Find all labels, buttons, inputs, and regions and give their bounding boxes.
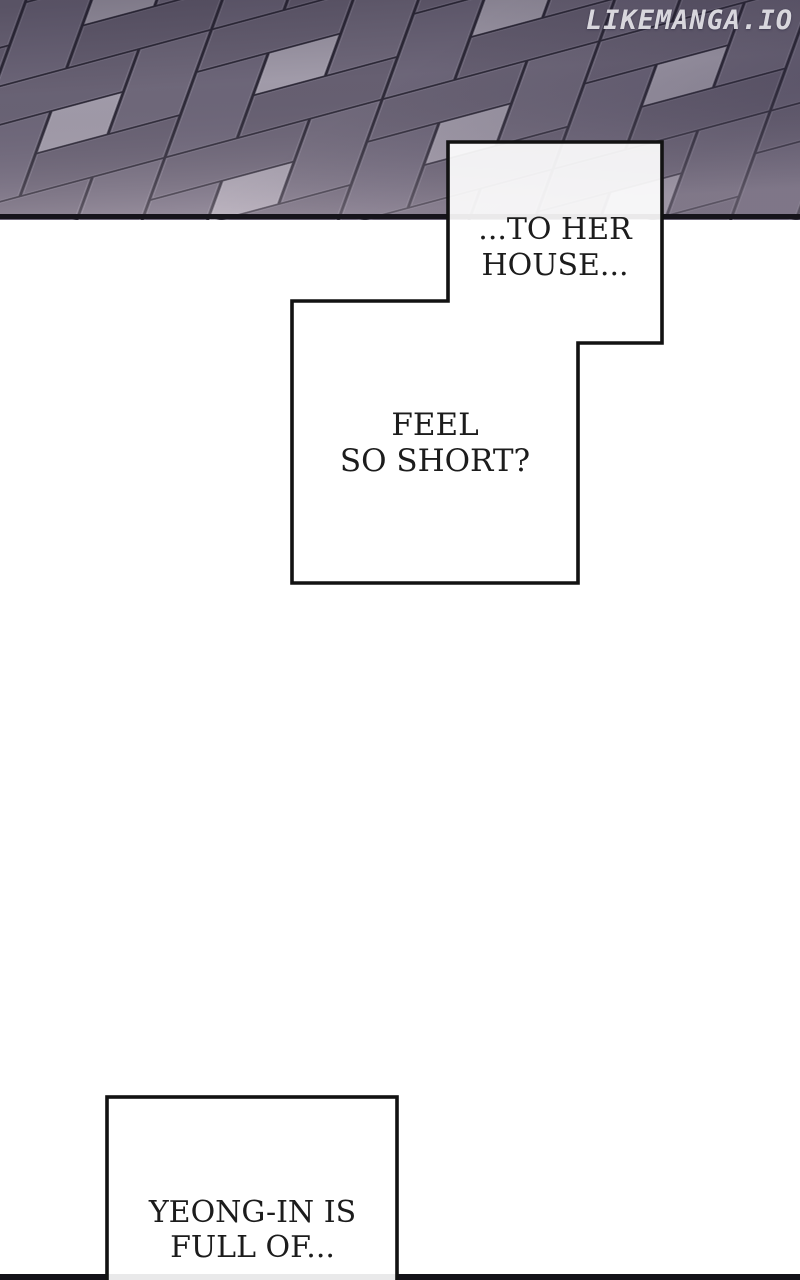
speech-text-yeong-in: YEONG-IN IS FULL OF... [107,1195,398,1265]
speech-line: FEEL [292,407,578,443]
next-panel-top-border [0,1274,800,1280]
speech-line: FULL OF... [107,1230,398,1265]
comic-page: LIKEMANGA.IO ...TO HER HOUSE... FEEL SO … [0,0,800,1280]
speech-line: ...TO HER [447,212,663,248]
site-watermark: LIKEMANGA.IO [586,5,793,36]
speech-line: SO SHORT? [292,443,578,479]
pavement-bottom-border [0,214,800,219]
speech-line: HOUSE... [447,248,663,284]
speech-text-feel-so-short: FEEL SO SHORT? [292,407,578,479]
speech-text-to-her-house: ...TO HER HOUSE... [447,212,663,284]
speech-line: YEONG-IN IS [107,1195,398,1230]
pavement-panel-image: LIKEMANGA.IO [0,0,800,220]
